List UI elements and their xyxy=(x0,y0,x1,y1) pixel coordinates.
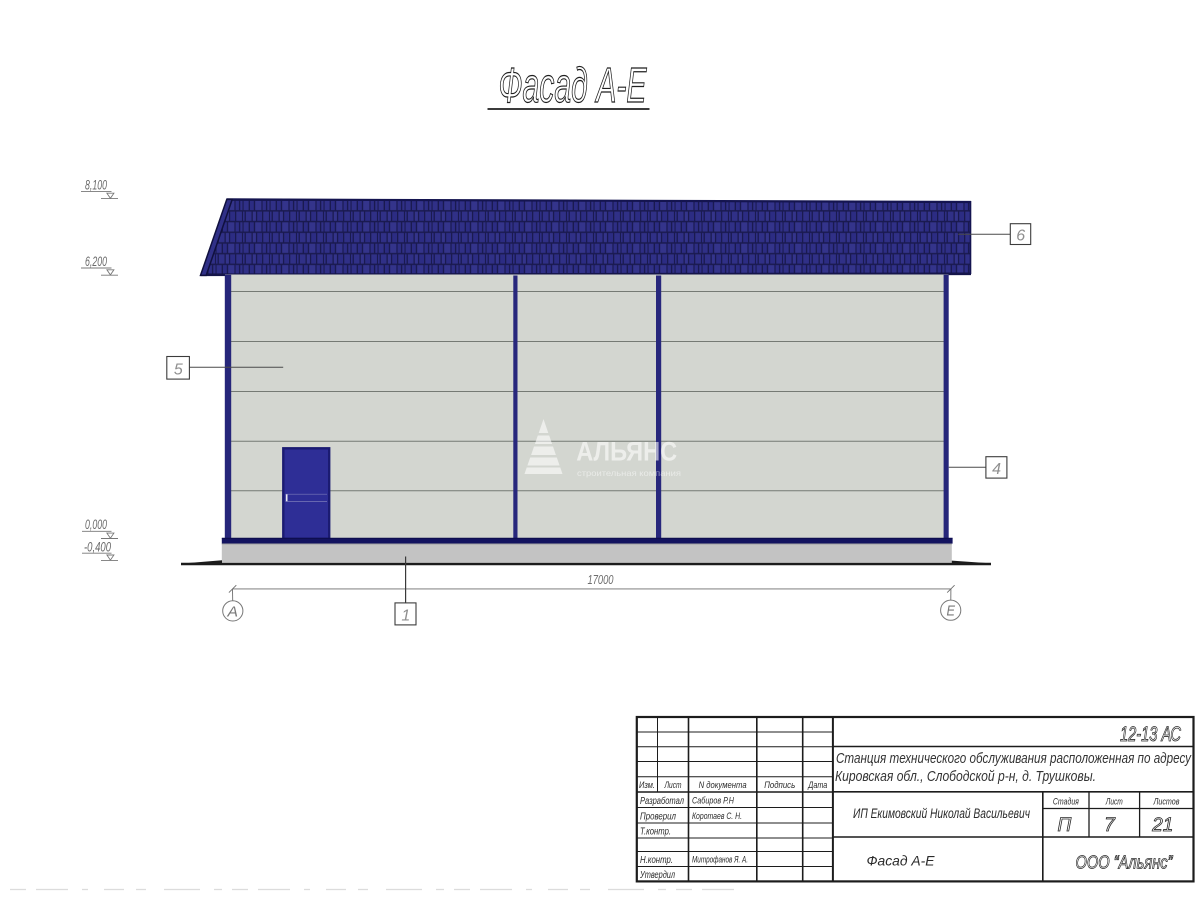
svg-text:Лист: Лист xyxy=(1105,797,1123,808)
svg-text:-0,400: -0,400 xyxy=(84,539,111,554)
svg-text:Фасад А-Е: Фасад А-Е xyxy=(867,853,936,869)
svg-text:6: 6 xyxy=(1016,228,1025,245)
svg-text:Листов: Листов xyxy=(1153,797,1180,808)
svg-text:Стадия: Стадия xyxy=(1053,797,1079,808)
svg-text:Митрофанов Я. А.: Митрофанов Я. А. xyxy=(692,855,748,866)
svg-text:ИП Екимовский Николай Васильев: ИП Екимовский Николай Васильевич xyxy=(853,806,1030,821)
svg-text:12-13 АС: 12-13 АС xyxy=(1120,723,1182,746)
svg-text:АЛЬЯНС: АЛЬЯНС xyxy=(576,437,677,467)
svg-text:7: 7 xyxy=(1104,815,1116,836)
svg-text:Фасад А-Е: Фасад А-Е xyxy=(499,59,648,113)
svg-text:N документа: N документа xyxy=(699,780,747,791)
svg-text:Н.контр.: Н.контр. xyxy=(640,855,673,866)
svg-text:21: 21 xyxy=(1151,815,1173,836)
svg-text:Разработал: Разработал xyxy=(640,795,684,807)
svg-text:1: 1 xyxy=(401,607,410,624)
svg-text:Т.контр.: Т.контр. xyxy=(640,827,671,838)
svg-text:Кировская обл., Слободской р-н: Кировская обл., Слободской р-н, д. Трушк… xyxy=(835,768,1096,785)
svg-text:ООО “Альянс”: ООО “Альянс” xyxy=(1076,852,1174,873)
svg-text:Коротаев С. Н.: Коротаев С. Н. xyxy=(692,811,742,822)
svg-text:Проверил: Проверил xyxy=(640,811,676,822)
svg-text:17000: 17000 xyxy=(588,572,615,587)
svg-text:Подпись: Подпись xyxy=(764,780,795,791)
svg-text:Изм.: Изм. xyxy=(639,780,655,791)
svg-text:Утвердил: Утвердил xyxy=(639,870,675,881)
svg-text:А: А xyxy=(227,603,239,620)
svg-text:Сабиров Р.Н: Сабиров Р.Н xyxy=(692,796,734,807)
svg-text:Е: Е xyxy=(946,603,955,620)
svg-text:5: 5 xyxy=(174,361,183,378)
svg-text:0,000: 0,000 xyxy=(85,517,107,532)
svg-text:Дата: Дата xyxy=(808,780,828,791)
svg-text:строительная компания: строительная компания xyxy=(577,468,681,478)
svg-text:8,100: 8,100 xyxy=(85,177,107,192)
svg-text:Лист: Лист xyxy=(664,780,682,791)
svg-text:Станция технического обслужива: Станция технического обслуживания распол… xyxy=(836,750,1192,767)
svg-text:6,200: 6,200 xyxy=(85,254,107,269)
svg-text:4: 4 xyxy=(992,461,1001,478)
svg-text:П: П xyxy=(1058,815,1072,836)
